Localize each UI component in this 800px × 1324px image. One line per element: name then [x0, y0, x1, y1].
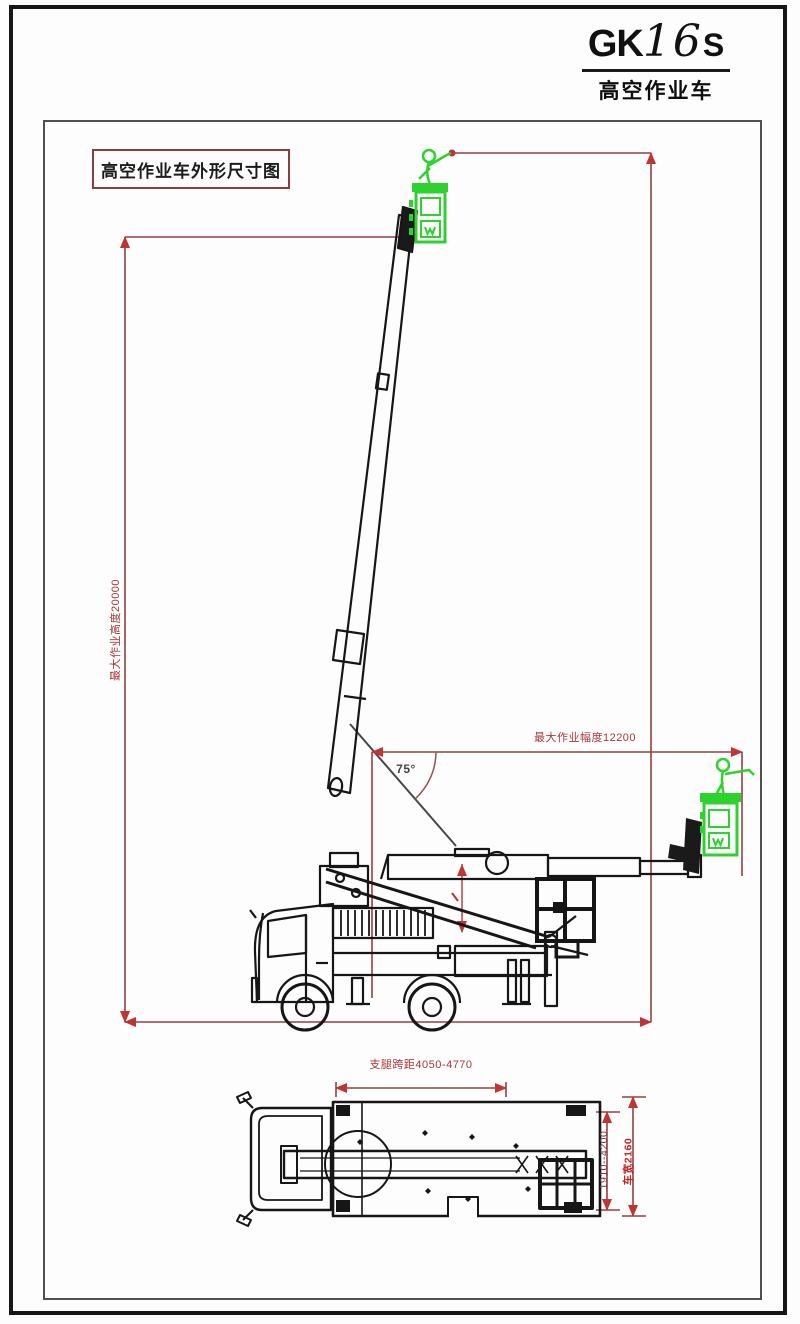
plan-detail-marks	[357, 1130, 531, 1202]
dim-outrigger-span: 支腿跨距4050-4770	[336, 1056, 506, 1072]
truck-plan-view	[237, 1092, 600, 1226]
drawing-page: GK16S 高空作业车 高空作业车外形尺寸图	[0, 0, 800, 1324]
telescopic-boom	[328, 207, 417, 797]
dim-max-working-radius: 最大作业幅度12200	[505, 729, 665, 745]
subframe-hatching	[341, 910, 425, 936]
dim-boom-angle: 75°	[386, 762, 426, 776]
upper-basket	[409, 183, 448, 242]
right-basket-bracket	[668, 818, 702, 874]
dim-max-working-height: 最大作业高度20000	[107, 550, 123, 710]
angle-annotation	[350, 724, 456, 846]
dim-outrigger-extend-range: 1910--4200	[598, 1085, 610, 1235]
dim-vehicle-width: 车宽2160	[621, 1087, 636, 1237]
right-basket	[700, 793, 741, 855]
upper-basket-operator	[419, 150, 451, 184]
